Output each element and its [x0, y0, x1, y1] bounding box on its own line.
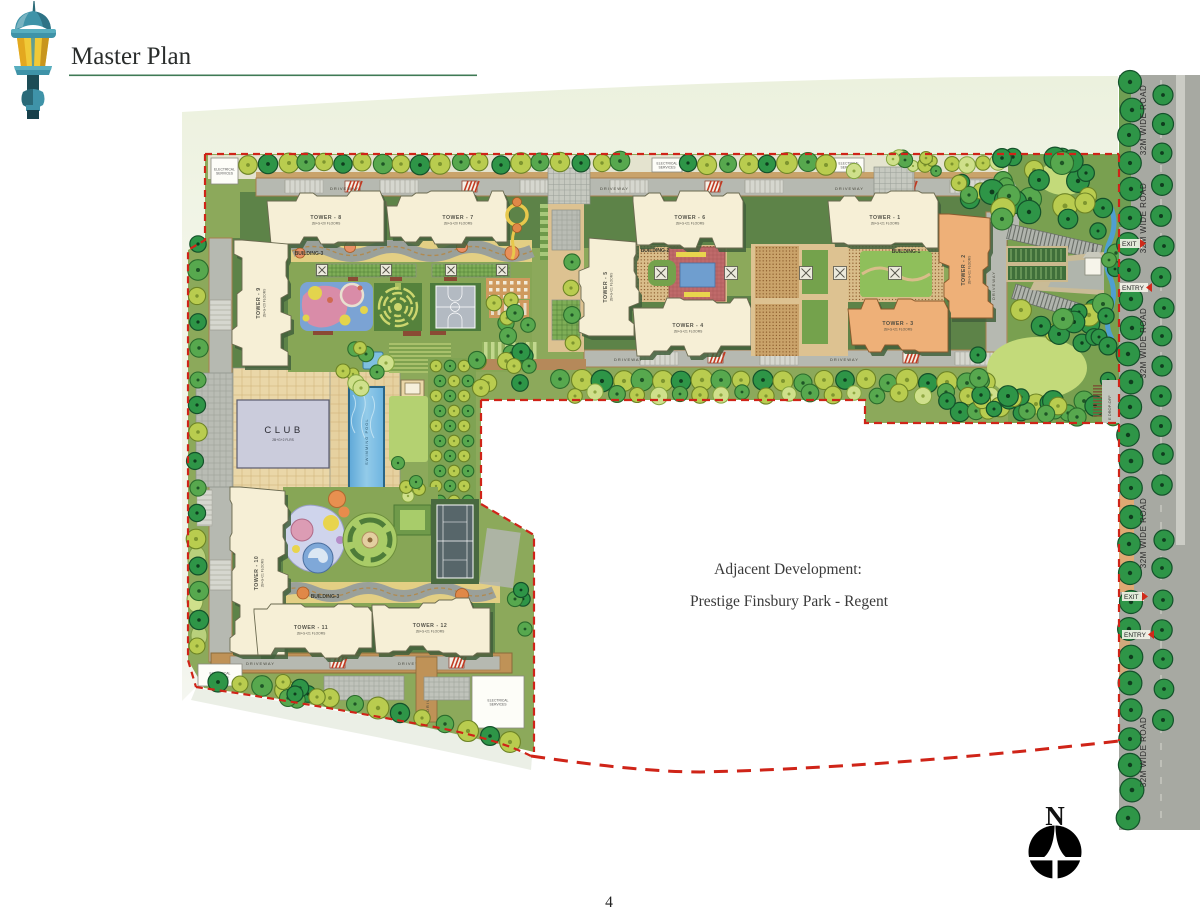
svg-text:TOWER - 7: TOWER - 7	[442, 215, 473, 221]
svg-text:DRIVEWAY: DRIVEWAY	[246, 661, 275, 666]
svg-text:EXIT: EXIT	[1124, 594, 1138, 601]
svg-text:SERVICES: SERVICES	[216, 172, 234, 176]
svg-text:Adjacent Development:: Adjacent Development:	[714, 561, 862, 578]
svg-text:2B+G+21 FLOORS: 2B+G+21 FLOORS	[968, 255, 972, 284]
svg-text:2B+G+2 FLRS: 2B+G+2 FLRS	[272, 438, 294, 442]
svg-text:32M WIDE ROAD: 32M WIDE ROAD	[1139, 717, 1148, 788]
svg-text:DRIVEWAY: DRIVEWAY	[830, 357, 859, 362]
svg-text:2B+G+20 FLOORS: 2B+G+20 FLOORS	[444, 222, 473, 226]
svg-text:4: 4	[605, 894, 613, 911]
svg-text:32M WIDE ROAD: 32M WIDE ROAD	[1139, 85, 1148, 156]
svg-text:TOWER - 5: TOWER - 5	[603, 271, 609, 302]
svg-text:SERVICES: SERVICES	[489, 703, 507, 707]
svg-text:TOWER - 1: TOWER - 1	[869, 215, 900, 221]
svg-text:CLUB: CLUB	[264, 425, 303, 436]
svg-text:2B+G+21 FLOORS: 2B+G+21 FLOORS	[416, 630, 445, 634]
svg-text:32M WIDE ROAD: 32M WIDE ROAD	[1139, 308, 1148, 379]
svg-text:TOWER - 8: TOWER - 8	[310, 215, 341, 221]
svg-text:EXIT: EXIT	[1122, 241, 1136, 248]
svg-text:TOWER - 6: TOWER - 6	[674, 215, 705, 221]
svg-text:TOWER - 12: TOWER - 12	[413, 623, 448, 629]
svg-text:DRIVEWAY: DRIVEWAY	[600, 186, 629, 191]
svg-text:TOWER - 11: TOWER - 11	[294, 625, 328, 631]
svg-text:Prestige Finsbury Park - Regen: Prestige Finsbury Park - Regent	[690, 593, 889, 610]
svg-text:TOWER - 2: TOWER - 2	[961, 254, 967, 285]
svg-text:Master Plan: Master Plan	[71, 43, 192, 70]
svg-text:SWIMMING POOL: SWIMMING POOL	[364, 418, 369, 465]
svg-text:2B+G+21 FLOORS: 2B+G+21 FLOORS	[297, 632, 326, 636]
svg-text:DRIVEWAY: DRIVEWAY	[330, 186, 359, 191]
svg-text:TOWER - 10: TOWER - 10	[254, 556, 260, 591]
svg-text:E DROP-OFF: E DROP-OFF	[1107, 395, 1112, 420]
svg-text:DRIVEWAY: DRIVEWAY	[614, 357, 643, 362]
svg-text:ENTRY: ENTRY	[1122, 285, 1145, 292]
svg-text:2B+G+20 FLOORS: 2B+G+20 FLOORS	[312, 222, 341, 226]
svg-text:TOWER - 3: TOWER - 3	[882, 321, 913, 327]
svg-text:2B+G+21 FLOORS: 2B+G+21 FLOORS	[674, 330, 703, 334]
svg-text:2B+G+21 FLOORS: 2B+G+21 FLOORS	[676, 222, 705, 226]
svg-text:BUILDING-3: BUILDING-3	[295, 251, 324, 257]
svg-text:BUILDING-3: BUILDING-3	[311, 594, 340, 600]
svg-text:2B+G+20 FLOORS: 2B+G+20 FLOORS	[263, 288, 267, 317]
svg-text:2B+G+21 FLOORS: 2B+G+21 FLOORS	[871, 222, 900, 226]
svg-text:DRIVEWAY: DRIVEWAY	[991, 271, 996, 300]
svg-text:2B+G+21 FLOORS: 2B+G+21 FLOORS	[884, 328, 913, 332]
svg-text:2B+G+21 FLOORS: 2B+G+21 FLOORS	[261, 558, 265, 587]
svg-text:ENTRY: ENTRY	[1124, 632, 1147, 639]
svg-text:BUILDING-1: BUILDING-1	[892, 249, 921, 255]
svg-text:32M WIDE ROAD: 32M WIDE ROAD	[1139, 498, 1148, 569]
svg-text:N: N	[1045, 801, 1065, 831]
svg-text:TOWER - 4: TOWER - 4	[672, 323, 703, 329]
svg-text:SERVICES: SERVICES	[658, 166, 676, 170]
svg-text:2B+G+21 FLOORS: 2B+G+21 FLOORS	[610, 272, 614, 301]
svg-text:DRIVEWAY: DRIVEWAY	[835, 186, 864, 191]
svg-text:TOWER - 9: TOWER - 9	[256, 287, 262, 318]
